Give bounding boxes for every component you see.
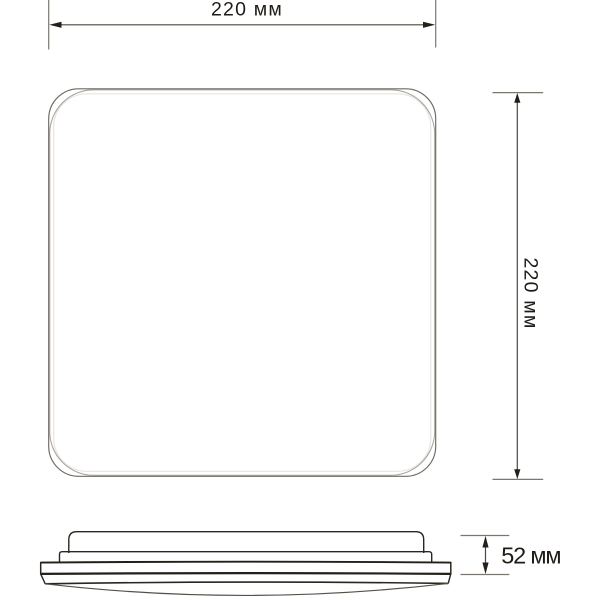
svg-text:52 мм: 52 мм [501, 543, 560, 569]
svg-text:220 мм: 220 мм [520, 258, 542, 330]
svg-text:220 мм: 220 мм [211, 0, 283, 21]
